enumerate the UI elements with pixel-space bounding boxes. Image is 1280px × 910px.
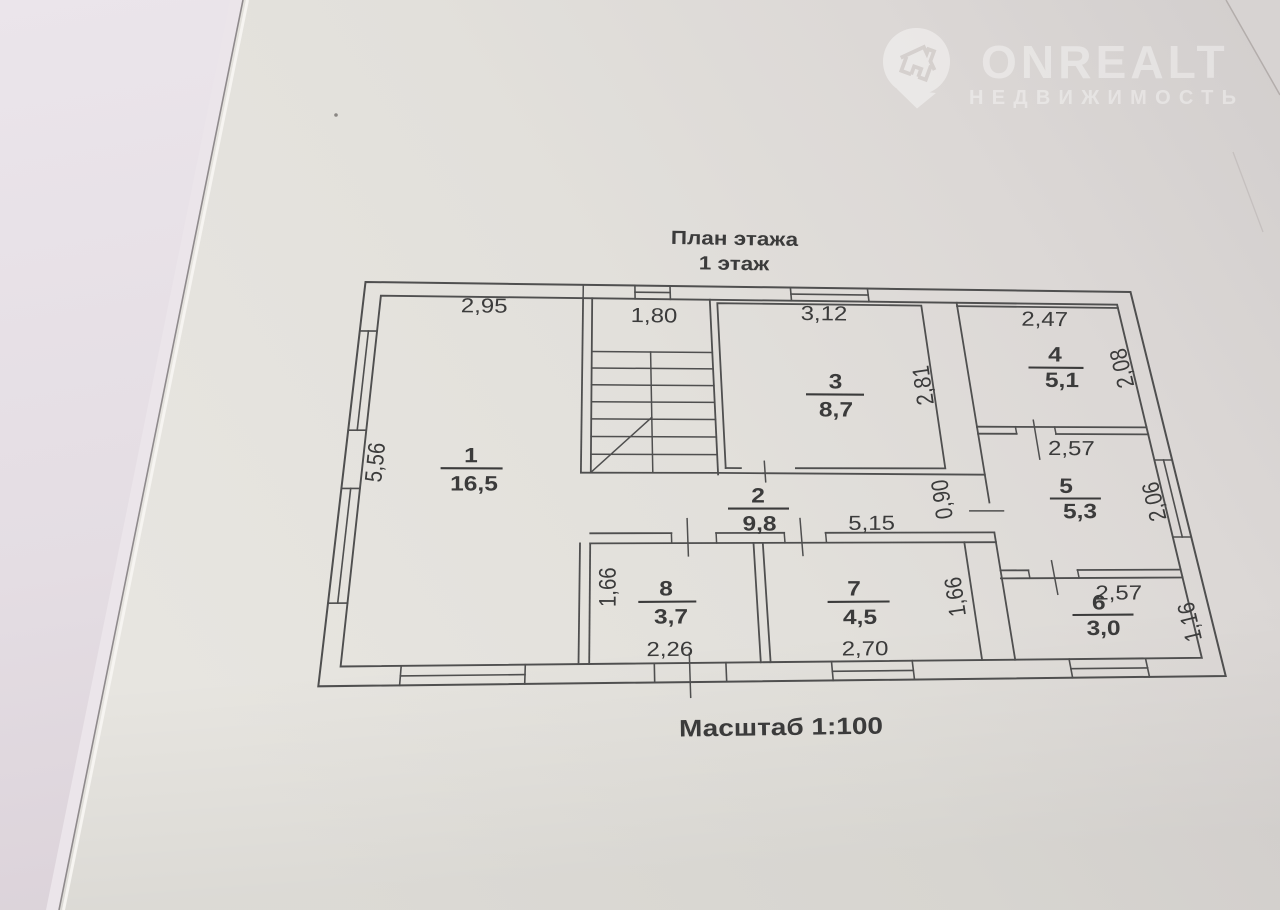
svg-text:9,8: 9,8 (742, 511, 776, 535)
svg-text:5: 5 (1059, 474, 1073, 498)
svg-text:1,80: 1,80 (631, 304, 678, 327)
svg-text:1,66: 1,66 (939, 575, 971, 618)
svg-text:8,7: 8,7 (819, 397, 853, 421)
svg-text:2,70: 2,70 (842, 637, 889, 660)
svg-text:1: 1 (464, 443, 478, 467)
svg-text:8: 8 (659, 576, 673, 600)
svg-text:5,3: 5,3 (1063, 499, 1097, 523)
svg-text:5,56: 5,56 (360, 441, 391, 483)
svg-text:3,12: 3,12 (801, 302, 848, 325)
svg-text:3,7: 3,7 (654, 604, 688, 628)
svg-text:0,90: 0,90 (926, 478, 958, 521)
svg-text:1,66: 1,66 (594, 567, 621, 607)
svg-text:2: 2 (751, 483, 765, 507)
svg-text:4,5: 4,5 (843, 605, 877, 629)
svg-text:Масштаб 1:100: Масштаб 1:100 (679, 712, 883, 742)
svg-text:2,95: 2,95 (461, 294, 508, 317)
svg-text:План этажа: План этажа (671, 227, 799, 250)
svg-text:4: 4 (1048, 342, 1062, 366)
svg-text:5,15: 5,15 (848, 511, 895, 534)
svg-text:3: 3 (829, 369, 843, 393)
svg-text:2,57: 2,57 (1048, 437, 1095, 460)
svg-text:3,0: 3,0 (1086, 616, 1120, 640)
svg-text:5,1: 5,1 (1045, 368, 1079, 392)
svg-text:2,57: 2,57 (1095, 581, 1142, 604)
svg-text:1 этаж: 1 этаж (699, 253, 770, 275)
svg-text:2,81: 2,81 (907, 364, 939, 407)
svg-text:16,5: 16,5 (450, 471, 498, 495)
svg-text:2,47: 2,47 (1021, 307, 1068, 330)
svg-text:2,26: 2,26 (646, 637, 693, 660)
svg-text:7: 7 (847, 576, 861, 600)
